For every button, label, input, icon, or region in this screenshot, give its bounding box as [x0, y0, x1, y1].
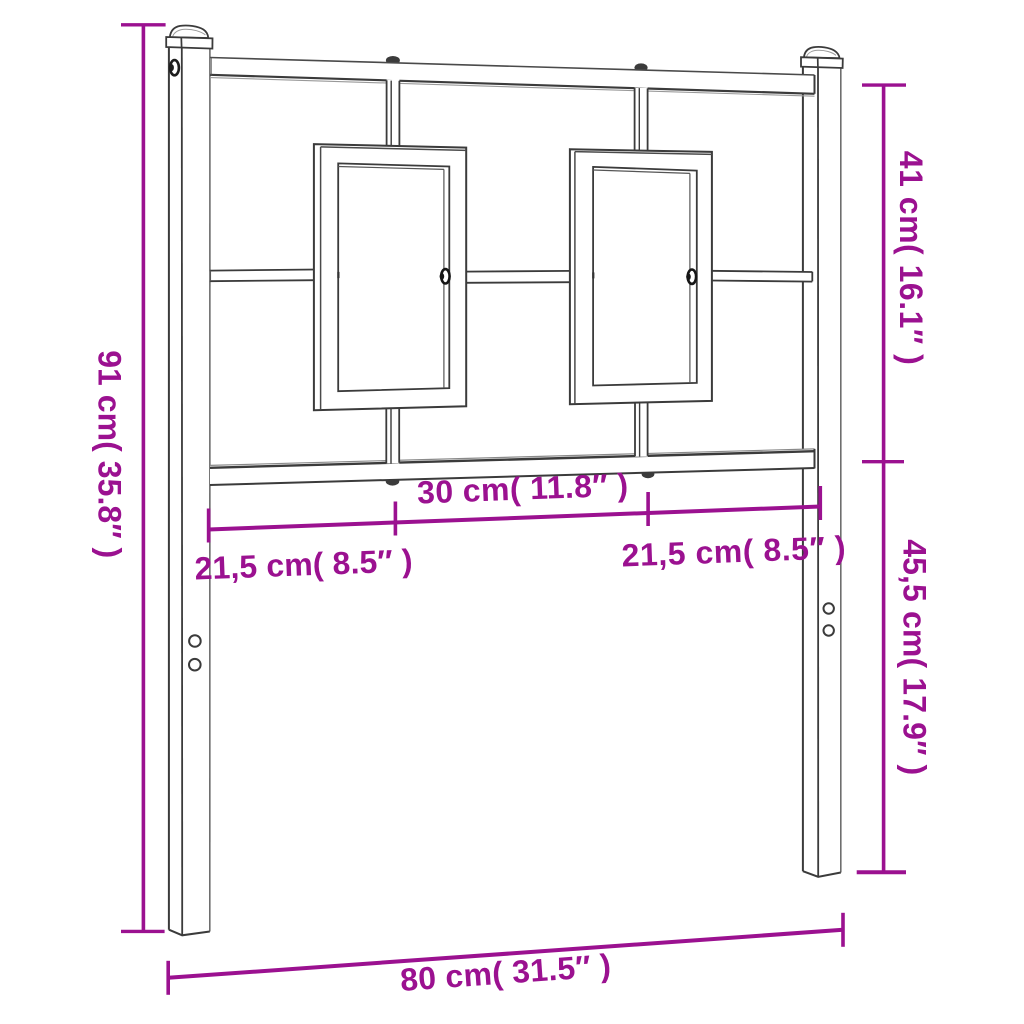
svg-text:91 cm( 35.8″ ): 91 cm( 35.8″ ): [91, 350, 127, 558]
svg-text:41 cm( 16.1″ ): 41 cm( 16.1″ ): [893, 151, 929, 365]
svg-text:45,5 cm( 17.9″ ): 45,5 cm( 17.9″ ): [897, 539, 933, 775]
